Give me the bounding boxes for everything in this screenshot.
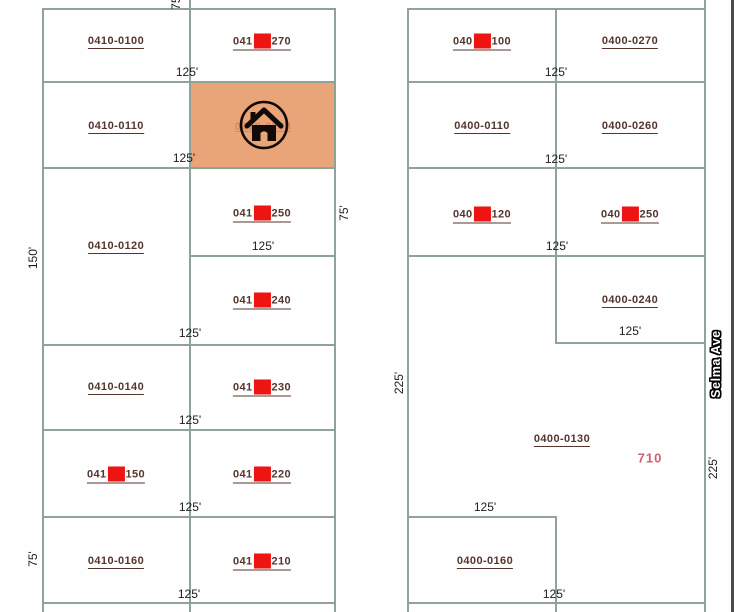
parcel-boundary-line — [334, 8, 336, 612]
parcel-id-0400-0110[interactable]: 0400-0110 — [454, 120, 510, 134]
parcel-boundary-line — [42, 8, 336, 10]
parcel-boundary-line — [407, 516, 557, 518]
red-marker-icon[interactable] — [622, 207, 639, 222]
dimension-label: 125' — [179, 500, 201, 514]
parcel-boundary-line — [42, 344, 336, 346]
dimension-label: 125' — [545, 65, 567, 79]
dimension-label: 125' — [173, 151, 195, 165]
parcel-id-0400-0250[interactable]: 040250 — [601, 207, 659, 224]
home-door — [261, 131, 268, 141]
parcel-id-0400-0260[interactable]: 0400-0260 — [602, 120, 658, 134]
parcel-boundary-line — [407, 167, 706, 169]
parcel-id-text: 210 — [272, 555, 292, 567]
dimension-label: 75' — [169, 0, 183, 10]
dimension-label: 75' — [337, 205, 351, 221]
parcel-id-text: 041 — [233, 555, 253, 567]
parcel-boundary-line — [407, 602, 706, 604]
parcel-id-0410-0220[interactable]: 041220 — [233, 467, 291, 484]
parcel-boundary-line — [42, 516, 336, 518]
dimension-label: 125' — [474, 500, 496, 514]
dimension-label: 225' — [706, 457, 720, 479]
parcel-id-0400-0240[interactable]: 0400-0240 — [602, 294, 658, 308]
parcel-id-text: 250 — [640, 208, 660, 220]
parcel-boundary-line — [189, 255, 336, 257]
parcel-boundary-line — [42, 81, 336, 83]
parcel-id-0400-0160[interactable]: 0400-0160 — [457, 555, 513, 569]
home-chimney — [251, 112, 256, 121]
parcel-boundary-line — [407, 81, 706, 83]
parcel-id-0410-0250[interactable]: 041250 — [233, 206, 291, 223]
parcel-id-0410-0230[interactable]: 041230 — [233, 380, 291, 397]
home-icon[interactable] — [238, 99, 290, 151]
parcel-boundary-line — [407, 8, 409, 612]
red-marker-icon[interactable] — [254, 206, 271, 221]
parcel-id-0410-0140[interactable]: 0410-0140 — [88, 381, 144, 395]
parcel-id-text: 270 — [272, 35, 292, 47]
parcel-id-0410-0150[interactable]: 041150 — [87, 467, 145, 484]
parcel-id-text: 040 — [453, 208, 473, 220]
parcel-id-text: 040 — [601, 208, 621, 220]
parcel-id-0410-0160[interactable]: 0410-0160 — [88, 555, 144, 569]
dimension-label: 150' — [26, 247, 40, 269]
dimension-label: 225' — [392, 372, 406, 394]
parcel-id-text: 120 — [492, 208, 512, 220]
dimension-label: 125' — [176, 65, 198, 79]
dimension-label: 125' — [546, 239, 568, 253]
red-marker-icon[interactable] — [474, 34, 491, 49]
parcel-id-text: 041 — [87, 468, 107, 480]
parcel-id-0400-0120[interactable]: 040120 — [453, 207, 511, 224]
address-number: 710 — [638, 451, 663, 466]
parcel-id-text: 250 — [272, 207, 292, 219]
street-label-selma-ave: Selma Ave — [709, 330, 723, 398]
parcel-map[interactable]: 0410-0260 Selma Ave 710 0410-01000412700… — [0, 0, 734, 612]
parcel-id-0410-0110[interactable]: 0410-0110 — [88, 120, 144, 134]
parcel-id-text: 220 — [272, 468, 292, 480]
parcel-boundary-line — [42, 429, 336, 431]
dimension-label: 125' — [545, 152, 567, 166]
parcel-id-text: 150 — [126, 468, 146, 480]
parcel-boundary-line — [407, 8, 706, 10]
parcel-boundary-line — [555, 8, 557, 344]
red-marker-icon[interactable] — [254, 34, 271, 49]
parcel-id-0410-0100[interactable]: 0410-0100 — [88, 35, 144, 49]
parcel-id-text: 041 — [233, 35, 253, 47]
dimension-label: 75' — [26, 551, 40, 567]
parcel-id-text: 041 — [233, 381, 253, 393]
parcel-boundary-line — [704, 0, 706, 612]
parcel-id-0410-0240[interactable]: 041240 — [233, 293, 291, 310]
parcel-boundary-line — [42, 167, 336, 169]
parcel-boundary-line — [407, 255, 706, 257]
parcel-id-text: 040 — [453, 35, 473, 47]
parcel-id-0400-0100[interactable]: 040100 — [453, 34, 511, 51]
parcel-id-0410-0270[interactable]: 041270 — [233, 34, 291, 51]
parcel-id-text: 230 — [272, 381, 292, 393]
dimension-label: 125' — [619, 324, 641, 338]
parcel-id-text: 240 — [272, 294, 292, 306]
parcel-boundary-line — [42, 602, 336, 604]
parcel-id-0410-0210[interactable]: 041210 — [233, 554, 291, 571]
parcel-id-0400-0130[interactable]: 0400-0130 — [534, 433, 590, 447]
red-marker-icon[interactable] — [254, 380, 271, 395]
red-marker-icon[interactable] — [254, 293, 271, 308]
parcel-id-text: 041 — [233, 207, 253, 219]
dimension-label: 125' — [179, 326, 201, 340]
dimension-label: 125' — [543, 587, 565, 601]
dimension-label: 125' — [252, 239, 274, 253]
red-marker-icon[interactable] — [254, 467, 271, 482]
red-marker-icon[interactable] — [474, 207, 491, 222]
dimension-label: 125' — [178, 587, 200, 601]
parcel-id-text: 100 — [492, 35, 512, 47]
parcel-boundary-line — [42, 8, 44, 612]
parcel-id-0410-0120[interactable]: 0410-0120 — [88, 240, 144, 254]
parcel-boundary-line — [555, 342, 706, 344]
parcel-id-0400-0270[interactable]: 0400-0270 — [602, 35, 658, 49]
parcel-boundary-line — [189, 0, 191, 612]
parcel-id-text: 041 — [233, 468, 253, 480]
parcel-id-text: 041 — [233, 294, 253, 306]
dimension-label: 125' — [179, 413, 201, 427]
red-marker-icon[interactable] — [254, 554, 271, 569]
red-marker-icon[interactable] — [108, 467, 125, 482]
